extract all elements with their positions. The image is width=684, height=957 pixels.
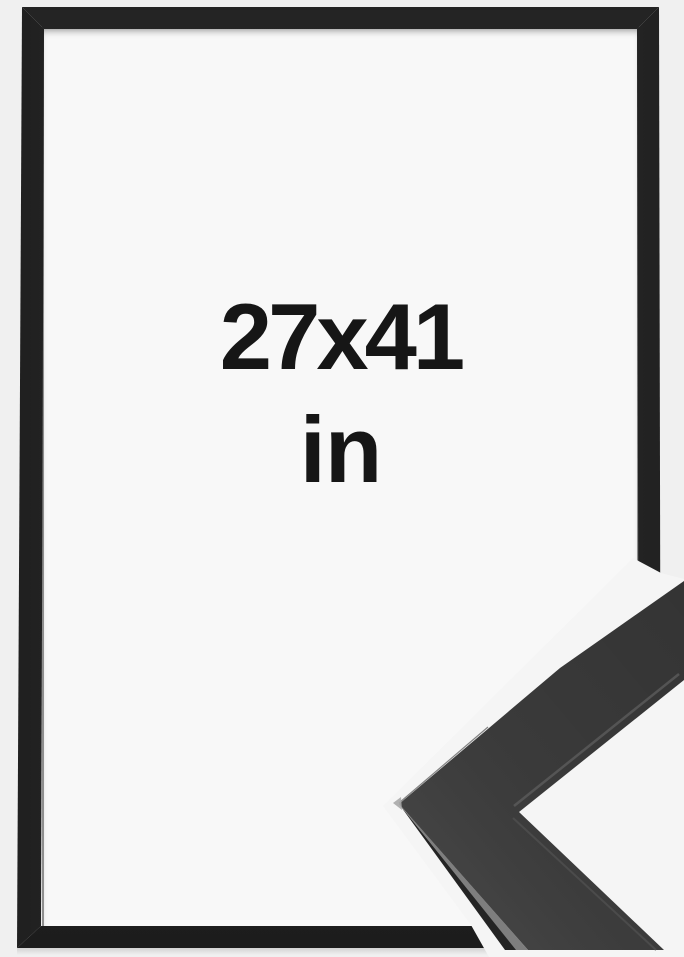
corner-detail-photo <box>0 0 684 957</box>
product-photo: 27x41 in <box>0 0 684 957</box>
